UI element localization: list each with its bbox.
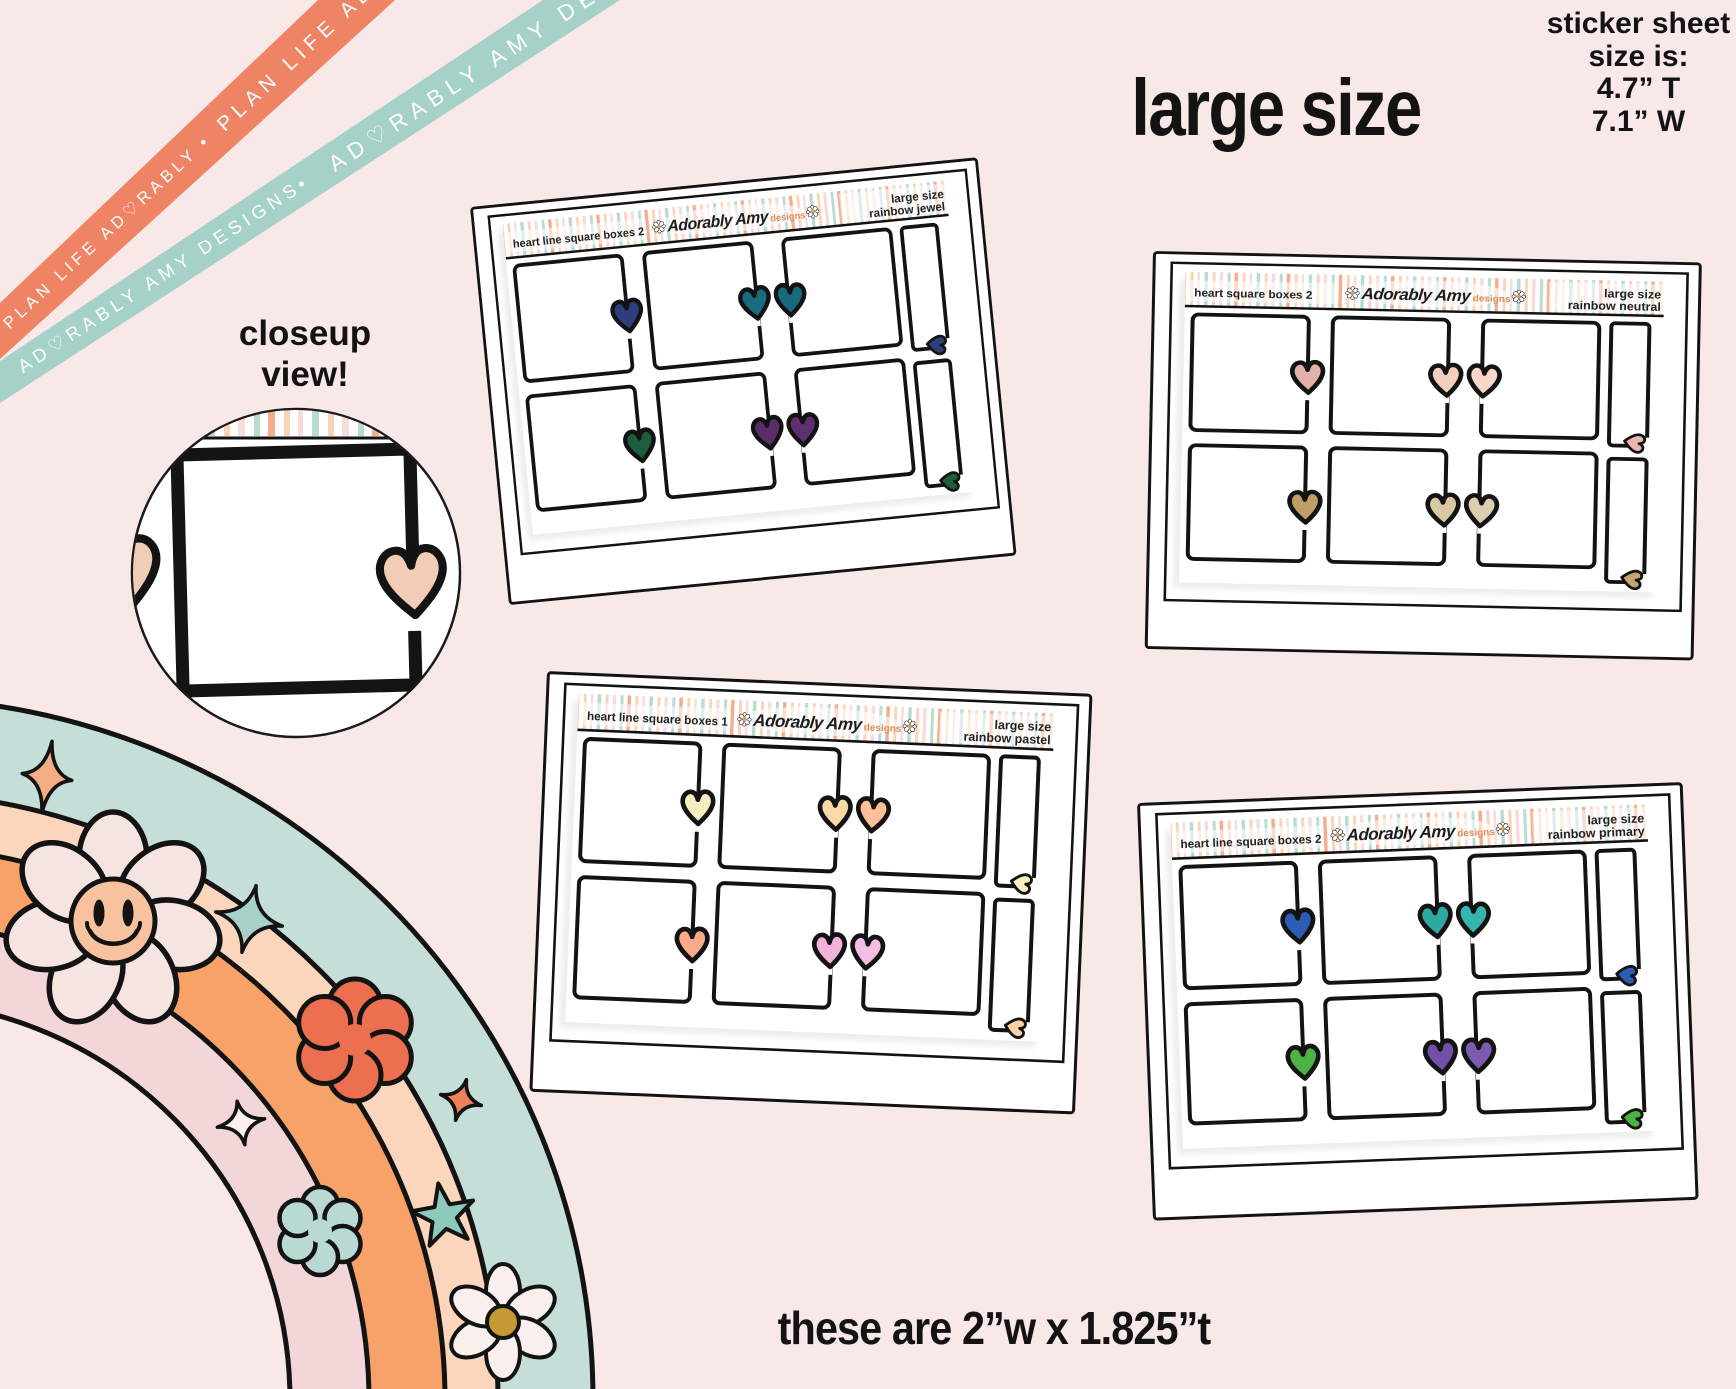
svg-text:rainbow neutral: rainbow neutral [1568,298,1661,314]
svg-text:designs: designs [1473,294,1512,305]
svg-text:designs: designs [1457,827,1495,839]
svg-text:AD♡RABLY AMY DESIGNS • AD: AD♡RABLY AMY DESIGNS • AD [324,0,764,177]
svg-text:Adorably Amy: Adorably Amy [1360,284,1473,305]
svg-text:designs: designs [863,722,901,735]
svg-text:heart square boxes 2: heart square boxes 2 [1194,288,1312,302]
